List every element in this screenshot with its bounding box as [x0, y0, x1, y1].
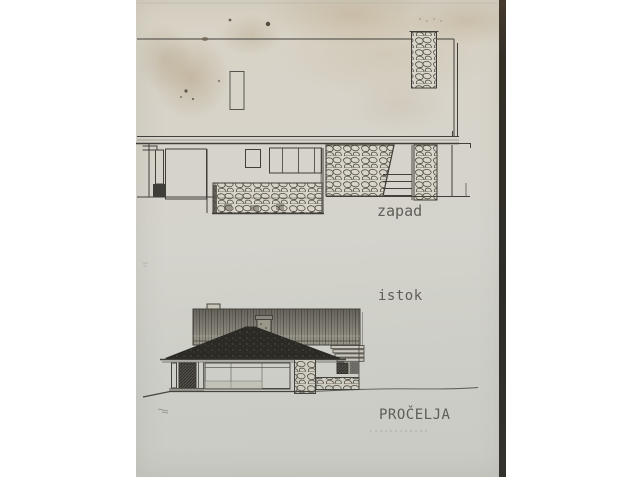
elevation-drawings [0, 0, 640, 480]
right-wall-edge [454, 39, 458, 137]
glazed-wall [205, 363, 290, 389]
right-stone-pier [414, 145, 452, 200]
ground-line-east [143, 388, 478, 414]
porch-left [137, 144, 215, 197]
photo-of-architectural-sheet: { "sheet": { "labels": { "west_elevation… [0, 0, 640, 480]
large-opening [166, 149, 207, 199]
east-elevation-drawing [143, 304, 478, 413]
right-wing [316, 363, 359, 390]
small-window [246, 150, 261, 168]
flue-rectangle [230, 72, 244, 110]
roof-vent [207, 304, 220, 309]
stone-pillar [295, 360, 316, 394]
stone-retaining-wall [212, 183, 324, 214]
west-elevation-drawing [136, 32, 471, 214]
stone-chimney [410, 32, 439, 89]
